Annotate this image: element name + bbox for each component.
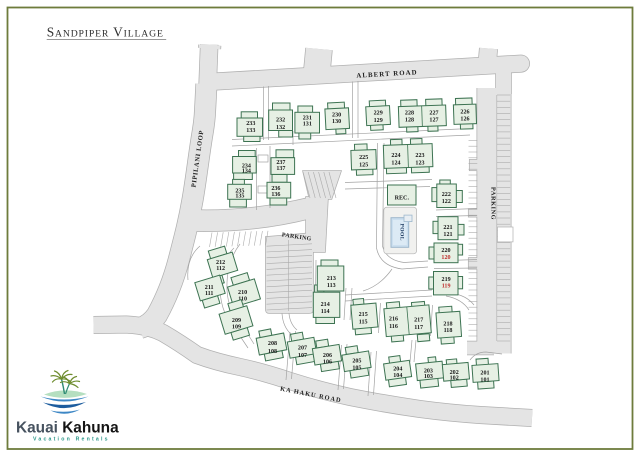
svg-text:210: 210 bbox=[238, 290, 247, 296]
svg-text:221: 221 bbox=[443, 225, 452, 231]
svg-text:117: 117 bbox=[414, 325, 423, 331]
svg-text:226: 226 bbox=[460, 110, 469, 116]
svg-text:218: 218 bbox=[443, 322, 452, 328]
svg-text:134: 134 bbox=[242, 169, 251, 175]
svg-text:122: 122 bbox=[442, 199, 451, 205]
svg-text:101: 101 bbox=[480, 378, 489, 384]
svg-text:121: 121 bbox=[443, 232, 452, 238]
svg-text:120: 120 bbox=[441, 255, 450, 261]
svg-text:133: 133 bbox=[246, 128, 255, 134]
svg-text:208: 208 bbox=[268, 341, 277, 347]
svg-text:216: 216 bbox=[389, 316, 398, 322]
svg-text:104: 104 bbox=[393, 373, 402, 379]
svg-text:220: 220 bbox=[441, 248, 450, 254]
svg-text:223: 223 bbox=[415, 153, 424, 159]
svg-text:106: 106 bbox=[323, 359, 332, 365]
svg-text:102: 102 bbox=[450, 376, 459, 382]
svg-text:119: 119 bbox=[442, 284, 451, 290]
svg-text:205: 205 bbox=[352, 359, 361, 365]
svg-text:132: 132 bbox=[276, 125, 285, 131]
svg-text:136: 136 bbox=[271, 192, 280, 198]
svg-text:229: 229 bbox=[374, 111, 383, 117]
svg-text:PARKING: PARKING bbox=[490, 187, 497, 220]
svg-text:125: 125 bbox=[359, 163, 368, 169]
svg-text:201: 201 bbox=[480, 371, 489, 377]
svg-text:109: 109 bbox=[232, 325, 241, 331]
svg-text:113: 113 bbox=[327, 283, 336, 289]
svg-text:217: 217 bbox=[414, 318, 423, 324]
svg-text:111: 111 bbox=[205, 291, 213, 297]
svg-text:137: 137 bbox=[276, 166, 285, 172]
svg-text:124: 124 bbox=[391, 161, 400, 167]
svg-text:126: 126 bbox=[460, 117, 469, 123]
svg-text:225: 225 bbox=[359, 155, 368, 161]
svg-text:131: 131 bbox=[303, 122, 312, 128]
svg-text:222: 222 bbox=[442, 192, 451, 198]
svg-text:207: 207 bbox=[298, 346, 307, 352]
svg-text:213: 213 bbox=[327, 276, 336, 282]
svg-text:206: 206 bbox=[323, 353, 332, 359]
svg-text:105: 105 bbox=[352, 366, 361, 372]
svg-text:204: 204 bbox=[393, 367, 402, 373]
svg-text:123: 123 bbox=[415, 161, 424, 167]
svg-text:108: 108 bbox=[268, 349, 277, 355]
svg-text:209: 209 bbox=[232, 318, 241, 324]
svg-text:228: 228 bbox=[405, 110, 414, 116]
svg-text:118: 118 bbox=[444, 328, 453, 334]
svg-text:215: 215 bbox=[359, 312, 368, 318]
svg-text:115: 115 bbox=[359, 320, 368, 326]
svg-text:129: 129 bbox=[374, 118, 383, 124]
svg-text:135: 135 bbox=[235, 194, 244, 200]
svg-text:107: 107 bbox=[298, 353, 307, 359]
svg-text:POOL: POOL bbox=[399, 223, 405, 240]
svg-text:230: 230 bbox=[332, 113, 341, 119]
svg-text:Vacation Rentals: Vacation Rentals bbox=[33, 437, 110, 443]
svg-text:116: 116 bbox=[389, 324, 398, 330]
svg-text:REC.: REC. bbox=[395, 196, 410, 202]
svg-text:231: 231 bbox=[303, 115, 312, 121]
svg-text:103: 103 bbox=[424, 374, 433, 380]
svg-text:227: 227 bbox=[429, 110, 438, 116]
svg-text:127: 127 bbox=[429, 118, 438, 124]
svg-text:219: 219 bbox=[442, 277, 451, 283]
svg-text:Kauai Kahuna: Kauai Kahuna bbox=[16, 420, 119, 437]
svg-text:224: 224 bbox=[391, 153, 400, 159]
svg-text:112: 112 bbox=[216, 266, 225, 272]
svg-text:128: 128 bbox=[405, 118, 414, 124]
svg-text:114: 114 bbox=[321, 309, 330, 315]
svg-text:232: 232 bbox=[276, 118, 285, 124]
svg-text:233: 233 bbox=[246, 121, 255, 127]
svg-text:130: 130 bbox=[332, 119, 341, 125]
svg-text:214: 214 bbox=[321, 302, 330, 308]
